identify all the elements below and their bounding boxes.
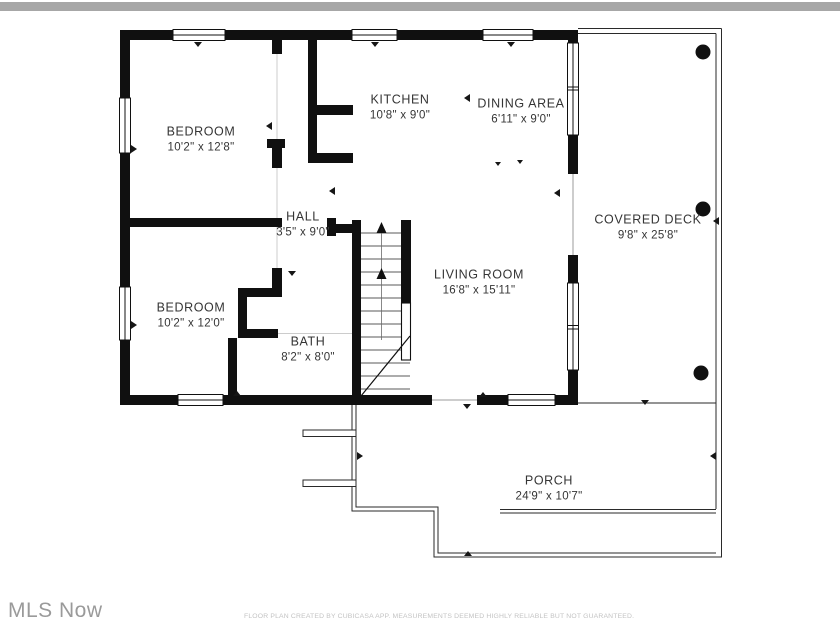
- room-label-living-room: LIVING ROOM 16'8" x 15'11": [434, 268, 524, 299]
- room-dimensions: 8'2" x 8'0": [281, 352, 335, 365]
- room-dimensions: 10'8" x 9'0": [370, 110, 430, 123]
- room-name: PORCH: [516, 474, 583, 488]
- windows: [120, 30, 579, 406]
- room-label-bedroom-bottom: BEDROOM 10'2" x 12'0": [157, 301, 226, 332]
- covered-deck-outline: [578, 29, 722, 558]
- cubicasa-disclaimer: FLOOR PLAN CREATED BY CUBICASA APP. MEAS…: [244, 613, 634, 620]
- room-name: HALL: [276, 210, 330, 224]
- room-label-bath: BATH 8'2" x 8'0": [281, 335, 335, 366]
- room-dimensions: 10'2" x 12'8": [167, 142, 236, 155]
- room-label-kitchen: KITCHEN 10'8" x 9'0": [370, 93, 430, 124]
- exterior-walls: [120, 30, 578, 405]
- mls-now-watermark: MLS Now: [8, 599, 103, 623]
- room-label-covered-deck: COVERED DECK 9'8" x 25'8": [594, 213, 701, 244]
- room-name: BATH: [281, 335, 335, 349]
- room-dimensions: 9'8" x 25'8": [594, 230, 701, 243]
- room-label-dining-area: DINING AREA 6'11" x 9'0": [477, 97, 564, 128]
- room-dimensions: 24'9" x 10'7": [516, 491, 583, 504]
- room-label-hall: HALL 3'5" x 9'0": [276, 210, 330, 241]
- interior-walls: [130, 40, 411, 400]
- room-label-bedroom-top: BEDROOM 10'2" x 12'8": [167, 125, 236, 156]
- porch-outline: [303, 405, 722, 557]
- room-dimensions: 6'11" x 9'0": [477, 114, 564, 127]
- room-label-porch: PORCH 24'9" x 10'7": [516, 474, 583, 505]
- room-name: LIVING ROOM: [434, 268, 524, 282]
- room-dimensions: 10'2" x 12'0": [157, 318, 226, 331]
- floor-plan-page: BEDROOM 10'2" x 12'8" KITCHEN 10'8" x 9'…: [0, 0, 840, 638]
- room-name: DINING AREA: [477, 97, 564, 111]
- room-name: BEDROOM: [167, 125, 236, 139]
- room-dimensions: 16'8" x 15'11": [434, 285, 524, 298]
- room-name: KITCHEN: [370, 93, 430, 107]
- room-name: BEDROOM: [157, 301, 226, 315]
- room-name: COVERED DECK: [594, 213, 701, 227]
- room-dimensions: 3'5" x 9'0": [276, 227, 330, 240]
